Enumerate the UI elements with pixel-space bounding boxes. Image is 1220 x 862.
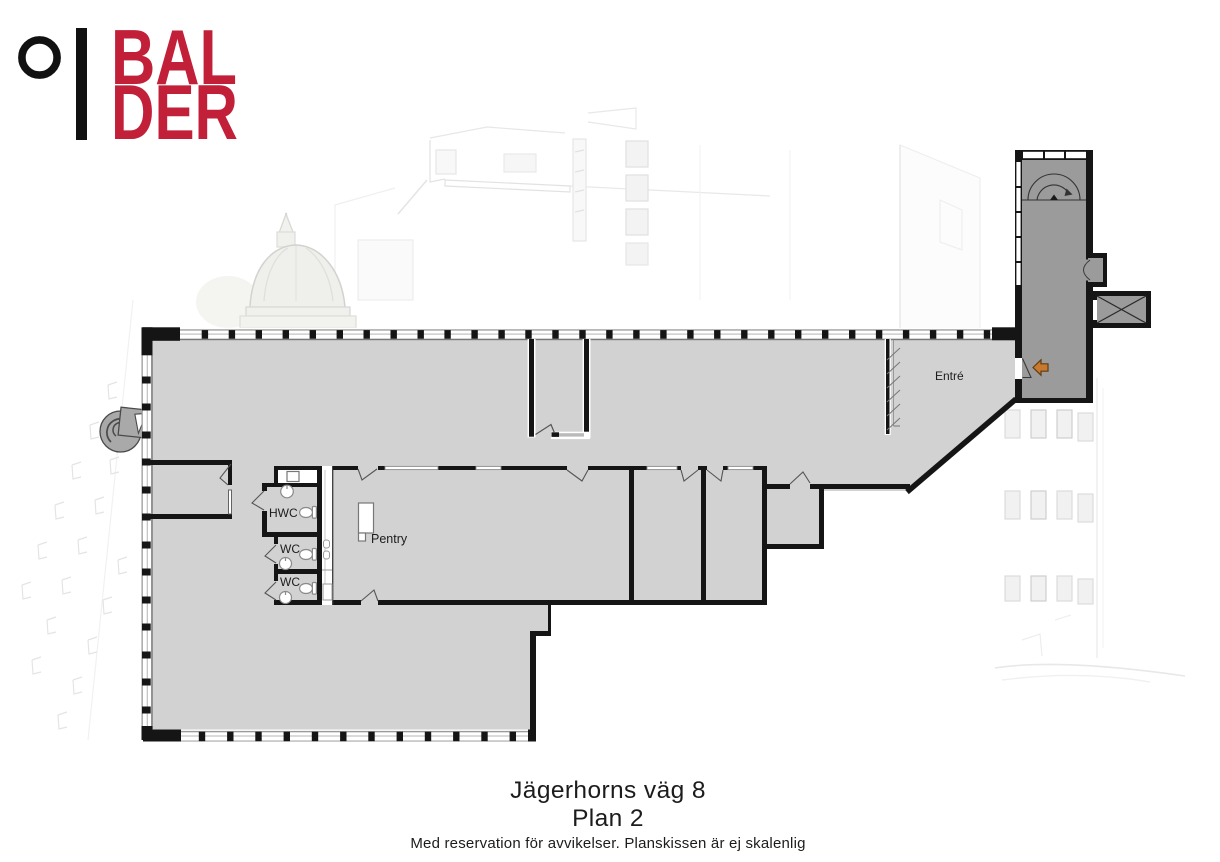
svg-text:Med reservation för avvikelser: Med reservation för avvikelser. Planskis… bbox=[410, 835, 805, 852]
svg-text:Plan 2: Plan 2 bbox=[572, 805, 644, 832]
svg-text:Jägerhorns väg 8: Jägerhorns väg 8 bbox=[510, 777, 706, 804]
svg-text:Pentry: Pentry bbox=[371, 532, 408, 546]
svg-text:WC: WC bbox=[280, 542, 300, 556]
svg-text:Entré: Entré bbox=[935, 369, 964, 383]
svg-text:WC: WC bbox=[280, 575, 300, 589]
svg-text:DER: DER bbox=[111, 68, 238, 156]
svg-text:HWC: HWC bbox=[269, 506, 298, 520]
